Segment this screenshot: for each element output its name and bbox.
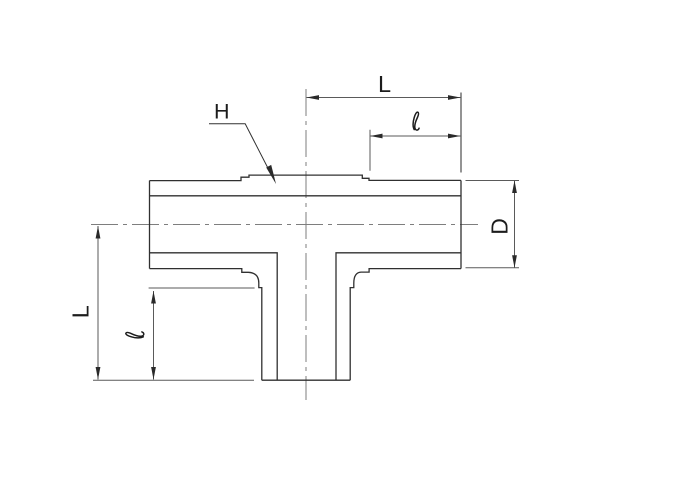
svg-text:H: H xyxy=(214,99,230,123)
svg-text:D: D xyxy=(487,218,513,235)
svg-text:L: L xyxy=(378,71,391,97)
svg-text:L: L xyxy=(68,305,94,318)
